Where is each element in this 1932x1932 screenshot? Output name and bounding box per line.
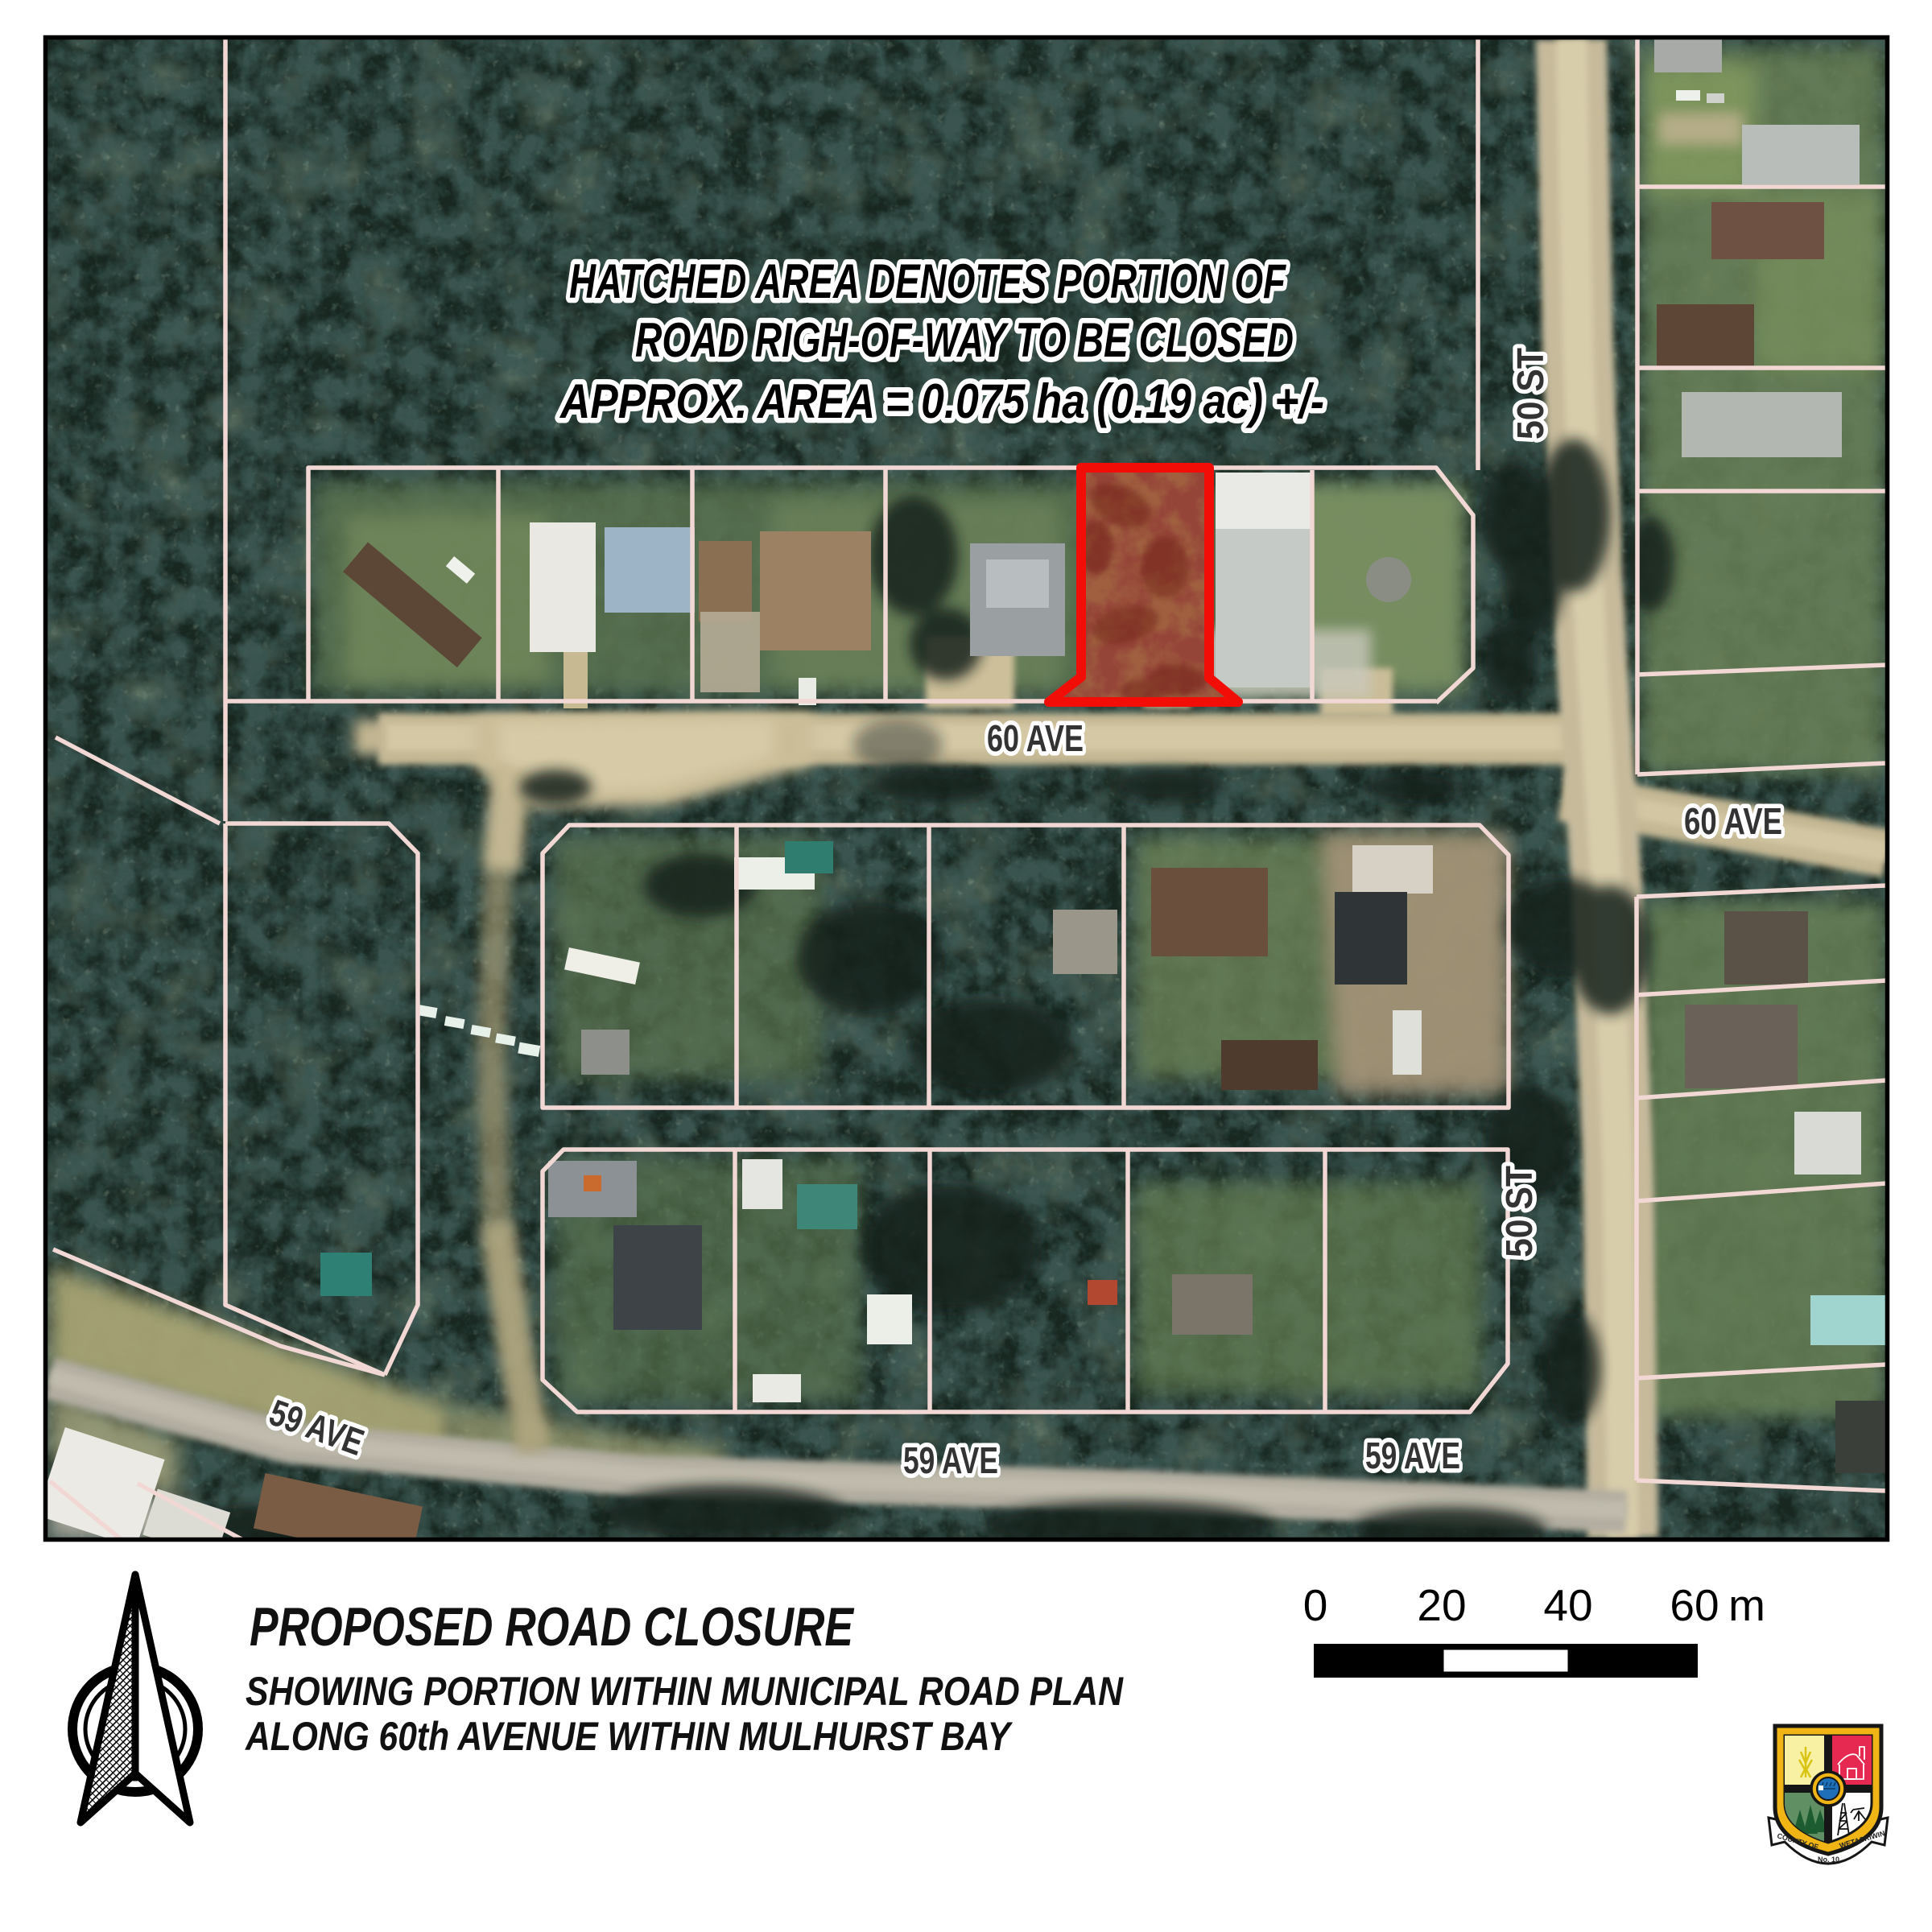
- svg-text:No. 10: No. 10: [1818, 1856, 1839, 1864]
- svg-text:50 ST: 50 ST: [1509, 348, 1551, 440]
- svg-text:0: 0: [1303, 1580, 1328, 1630]
- svg-text:PROPOSED ROAD CLOSURE: PROPOSED ROAD CLOSURE: [250, 1596, 855, 1657]
- svg-text:59 AVE: 59 AVE: [1365, 1435, 1460, 1476]
- svg-text:60 AVE: 60 AVE: [987, 717, 1084, 759]
- svg-text:20: 20: [1417, 1580, 1466, 1630]
- svg-text:60: 60: [1670, 1580, 1719, 1630]
- svg-text:ROAD RIGH-OF-WAY TO BE CLOSED: ROAD RIGH-OF-WAY TO BE CLOSED: [635, 313, 1294, 367]
- svg-text:40: 40: [1543, 1580, 1592, 1630]
- svg-text:50 ST: 50 ST: [1498, 1166, 1540, 1257]
- svg-text:m: m: [1728, 1580, 1765, 1630]
- svg-text:59 AVE: 59 AVE: [903, 1439, 998, 1481]
- svg-text:SHOWING PORTION WITHIN MUNICIP: SHOWING PORTION WITHIN MUNICIPAL ROAD PL…: [246, 1669, 1124, 1714]
- svg-text:ALONG 60th AVENUE WITHIN MULHU: ALONG 60th AVENUE WITHIN MULHURST BAY: [244, 1714, 1013, 1759]
- svg-text:APPROX. AREA = 0.075 ha (0.19: APPROX. AREA = 0.075 ha (0.19 ac) +/-: [559, 374, 1324, 428]
- svg-text:HATCHED AREA DENOTES PORTION O: HATCHED AREA DENOTES PORTION OF: [569, 254, 1286, 308]
- svg-text:60 AVE: 60 AVE: [1684, 800, 1782, 842]
